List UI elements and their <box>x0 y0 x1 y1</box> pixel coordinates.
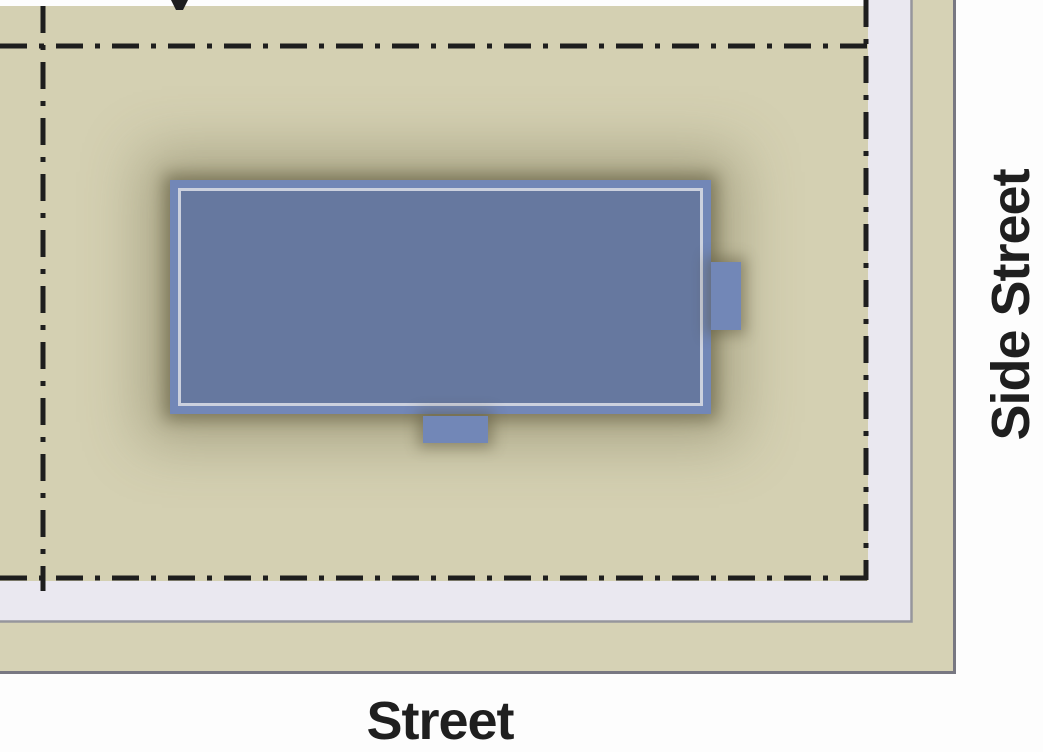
sidewalk-street <box>0 581 911 621</box>
building-footprint <box>170 180 711 414</box>
planting-strip-street <box>0 621 955 672</box>
planting-strip-side-street <box>911 0 955 672</box>
front-stoop <box>423 416 488 443</box>
side-porch <box>711 262 741 330</box>
side-street-label: Side Street <box>980 169 1042 440</box>
street-label: Street <box>0 690 880 752</box>
site-plan-canvas: Street Side Street <box>0 0 1043 752</box>
sidewalk-side-street <box>868 0 911 621</box>
roof-inset-outline <box>178 188 703 406</box>
